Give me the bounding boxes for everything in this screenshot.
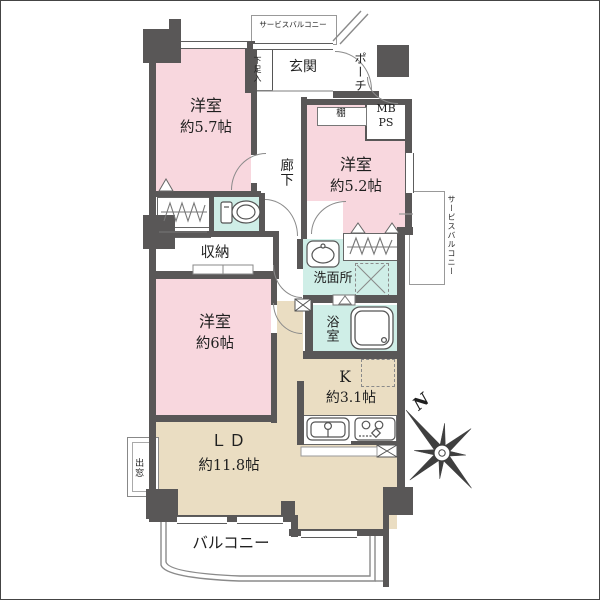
label-bay-window: 出窓 <box>133 448 143 488</box>
storage-door <box>193 265 253 274</box>
stove-icon <box>355 418 395 440</box>
label-kitchen-size: 約3.1帖 <box>313 391 389 407</box>
label-ld-size: 約11.8帖 <box>173 458 285 474</box>
toilet-icon <box>221 201 260 223</box>
label-kitchen-name: K <box>319 369 371 386</box>
washbasin-icon <box>307 241 339 267</box>
label-ld-name: ＬＤ <box>181 432 277 450</box>
label-bedroom-5-2-size: 約5.2帖 <box>309 179 403 195</box>
diagonal-boundary-line <box>333 11 368 44</box>
floorplan-linework <box>1 1 600 600</box>
label-bedroom-6-name: 洋室 <box>159 313 271 331</box>
label-bedroom-5-7-size: 約5.7帖 <box>159 120 253 136</box>
label-bathroom: 浴室 <box>323 308 338 350</box>
label-bedroom-6-size: 約6帖 <box>159 336 271 352</box>
bathtub-icon <box>351 307 393 349</box>
label-storage: 収納 <box>167 245 263 261</box>
label-bedroom-5-2-name: 洋室 <box>311 156 401 174</box>
label-shelf: 棚 <box>319 109 363 120</box>
label-ps: PS <box>367 117 405 129</box>
label-corridor: 廊下 <box>277 147 292 197</box>
label-balcony: バルコニー <box>179 535 283 552</box>
bath-door <box>333 295 355 305</box>
label-service-balcony-top: サービスバルコニー <box>252 21 334 29</box>
label-bedroom-5-7-name: 洋室 <box>161 97 251 115</box>
label-porch: ポーチ <box>352 43 366 101</box>
label-entrance: 玄関 <box>273 60 333 76</box>
label-service-balcony-right: サービスバルコニー <box>446 185 455 285</box>
label-mb: MB <box>367 103 405 115</box>
floorplan-canvas: サービスバルコニー 下足入 玄関 ポーチ MB PS 棚 洋室 約5.7帖 廊下… <box>0 0 600 600</box>
pass-counter <box>301 447 377 456</box>
label-shoe-cabinet: 下足入 <box>252 52 261 86</box>
kitchen-sink-icon <box>307 418 349 440</box>
label-washroom: 洗面所 <box>301 272 365 287</box>
